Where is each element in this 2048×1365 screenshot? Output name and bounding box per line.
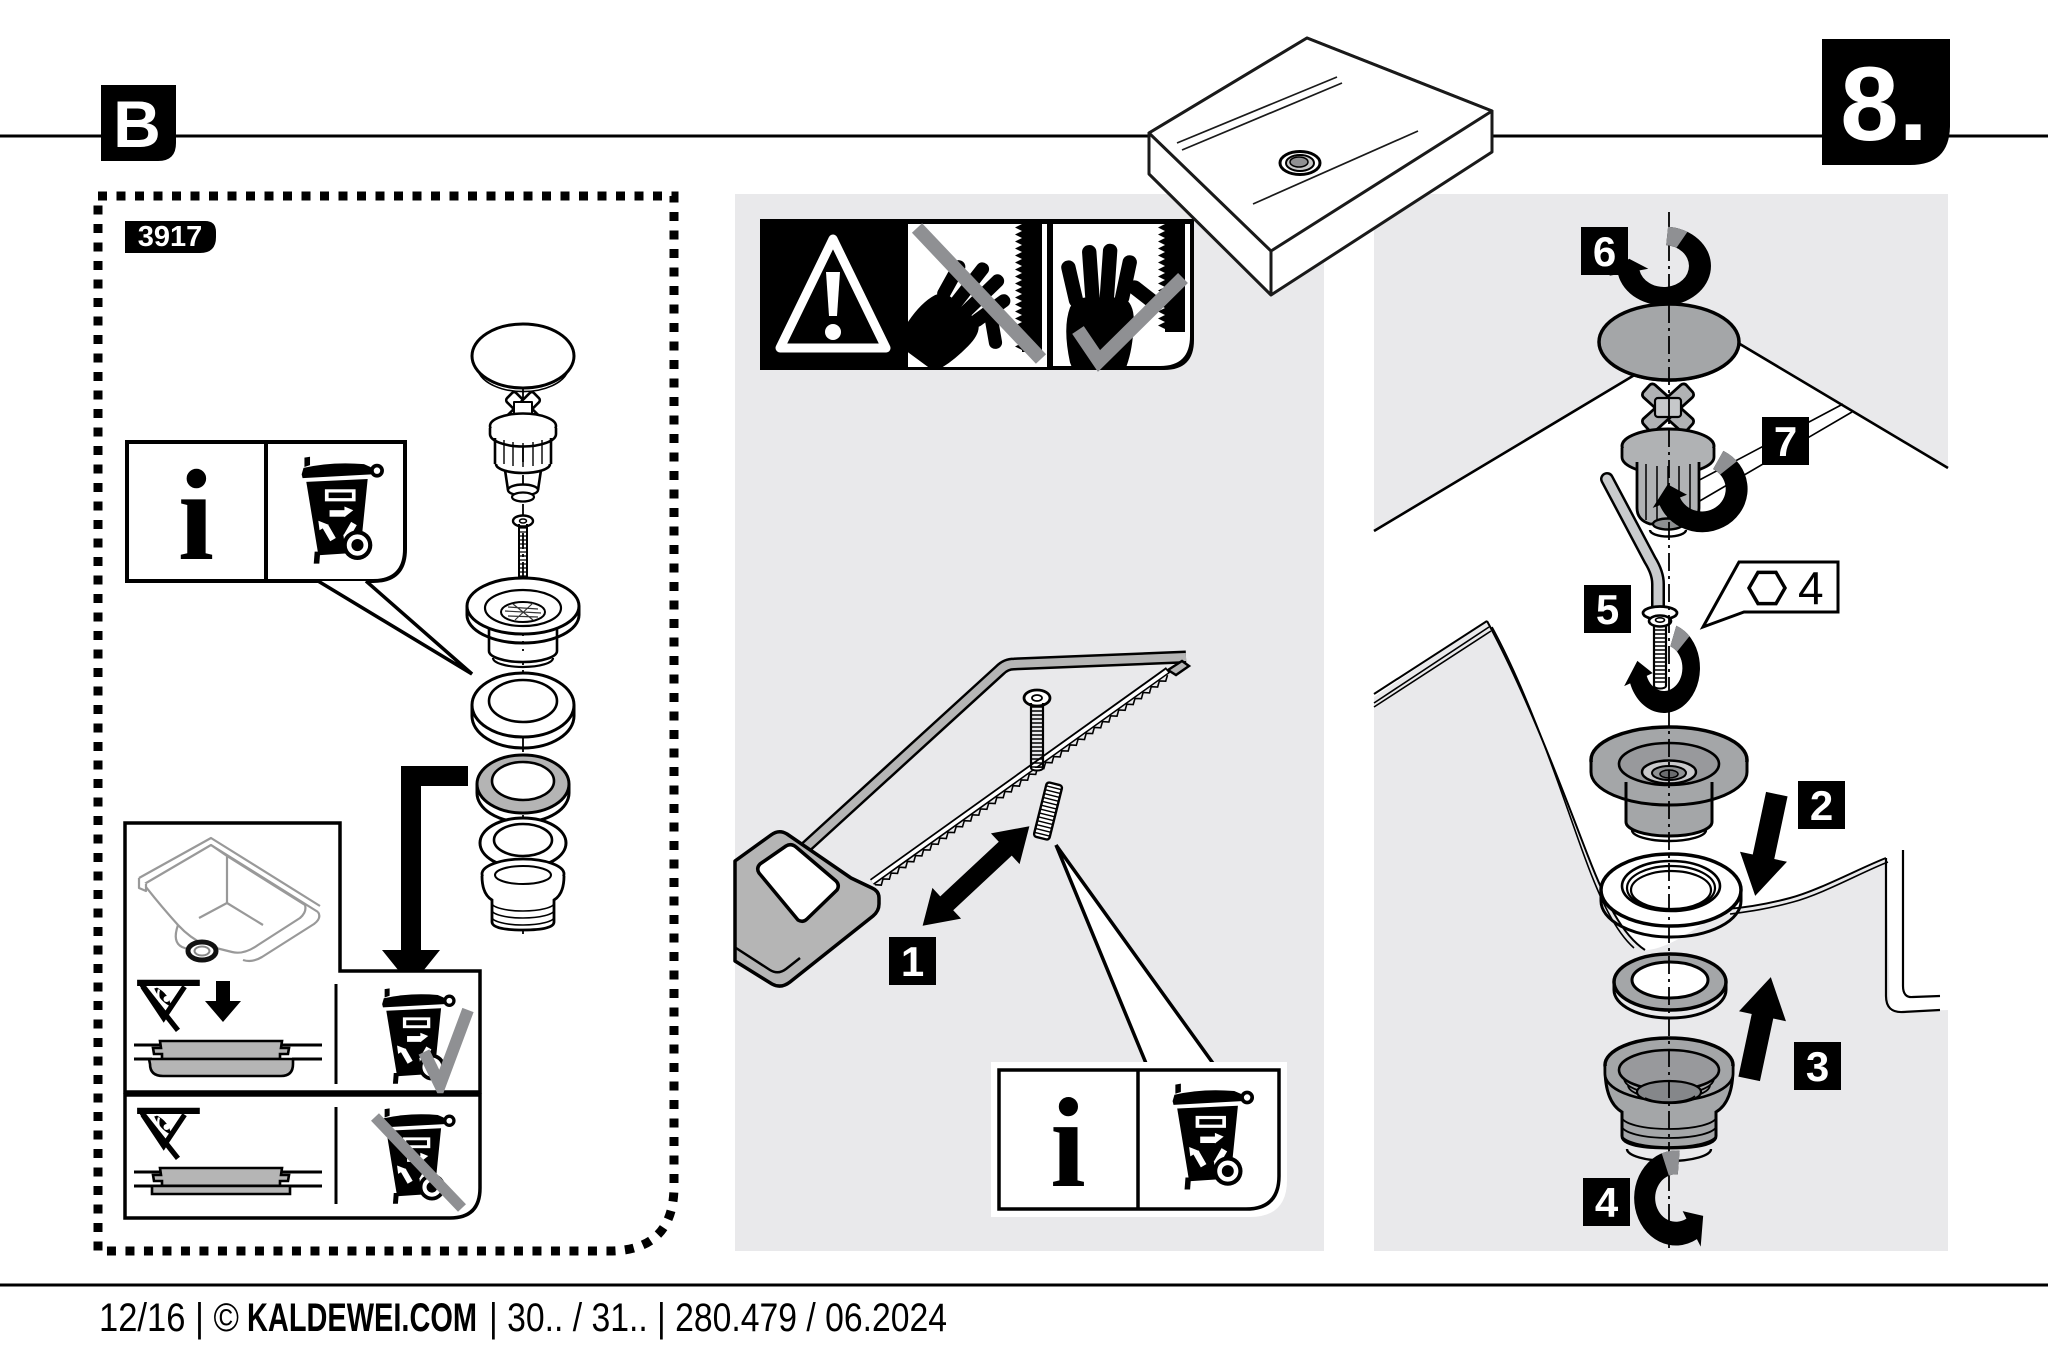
svg-text:4: 4 (1595, 1179, 1619, 1226)
svg-text:i: i (178, 444, 214, 588)
svg-text:3: 3 (1806, 1043, 1829, 1090)
svg-text:3917: 3917 (138, 221, 203, 253)
svg-text:2: 2 (1810, 782, 1833, 829)
svg-text:1: 1 (901, 938, 924, 985)
svg-text:| 30.. / 31.. | 280.479 / 06.2: | 30.. / 31.. | 280.479 / 06.2024 (489, 1296, 947, 1340)
svg-text:8.: 8. (1840, 46, 1928, 163)
svg-text:4: 4 (1798, 562, 1824, 614)
svg-text:5: 5 (1596, 586, 1619, 633)
svg-text:7: 7 (1774, 418, 1797, 465)
svg-text:i: i (1050, 1072, 1086, 1214)
svg-text:B: B (113, 87, 161, 161)
svg-text:12/16 | ©: 12/16 | © (99, 1296, 239, 1340)
svg-text:KALDEWEI.COM: KALDEWEI.COM (247, 1296, 477, 1340)
svg-text:6: 6 (1593, 228, 1616, 275)
